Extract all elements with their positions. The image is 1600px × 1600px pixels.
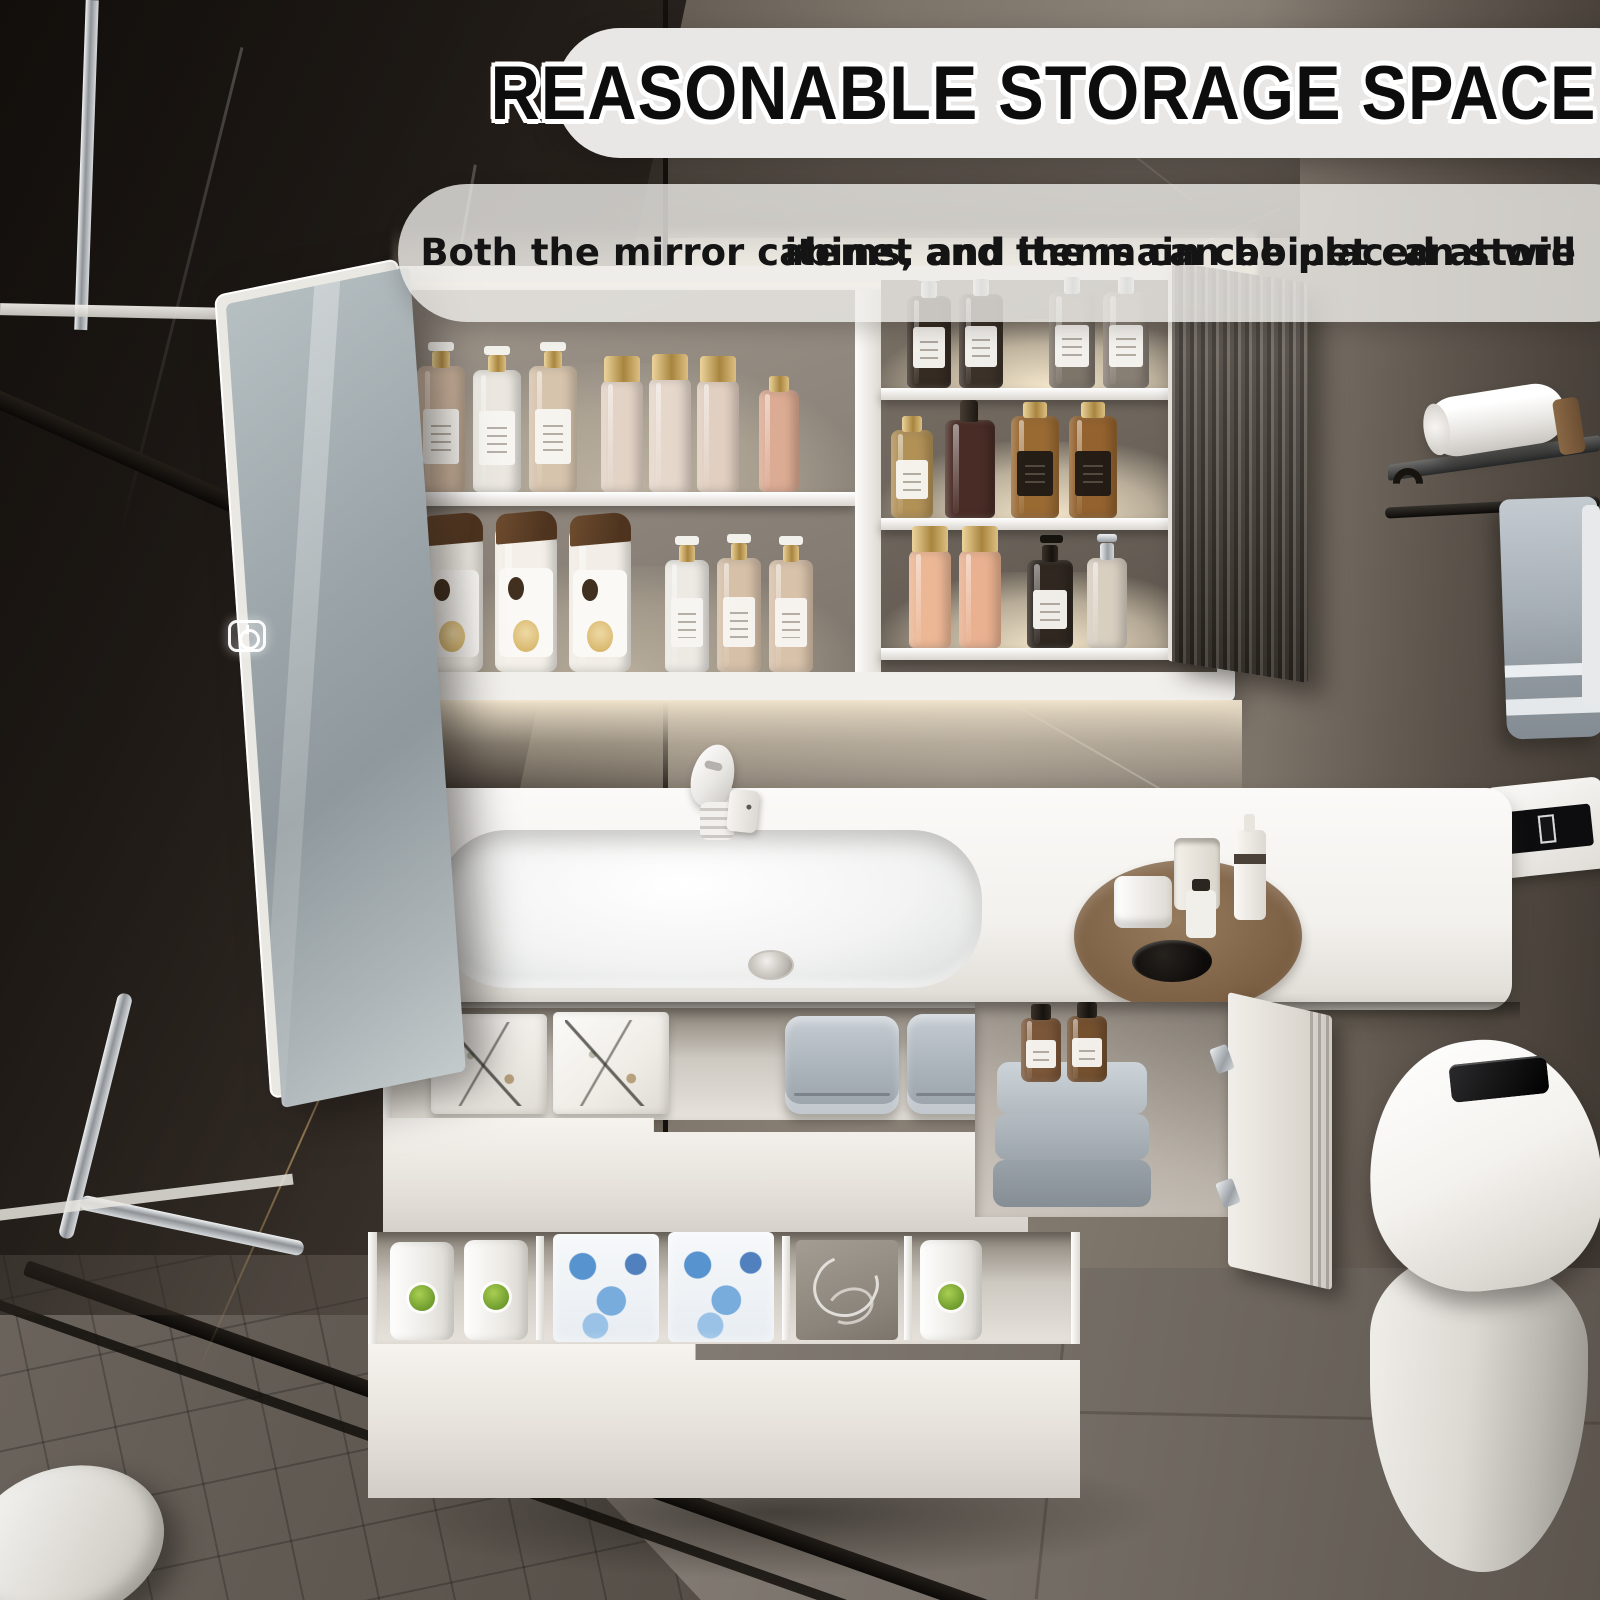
bottle-part: [775, 598, 808, 647]
open-shelf-row-2: [881, 400, 1217, 518]
bottle-part: [759, 390, 799, 492]
white-bottle-green-label: [390, 1242, 454, 1340]
shelf-board: [403, 492, 855, 506]
vanity-top-drawer: [383, 1008, 1028, 1244]
bottle-part: [731, 543, 747, 560]
bottle-part: [671, 598, 704, 647]
bottle-part: [909, 550, 951, 648]
bottle-part: [769, 376, 788, 392]
bottle-part: [945, 420, 995, 518]
hanging-towel-white: [1582, 505, 1600, 705]
bottle-part: [679, 545, 695, 562]
white-bottle-green-label: [920, 1240, 982, 1340]
drawer-front-panel: [383, 1118, 1028, 1244]
bottle-part: [535, 409, 571, 464]
bottle-part: [423, 409, 459, 464]
bottle-part: [573, 570, 626, 658]
subtitle-line-2: items, and items can be placed at will: [785, 230, 1576, 276]
power-icon: [228, 620, 266, 652]
soap-pump-bottle: [769, 560, 813, 672]
bottle-part: [422, 511, 483, 546]
drawer-divider: [536, 1236, 544, 1340]
side-cabinet-door: [1228, 992, 1332, 1290]
bottle-part: [1081, 402, 1104, 418]
peach-bottle: [909, 550, 951, 648]
drawer-interior: [383, 1008, 1028, 1120]
bottle-part: [1055, 325, 1089, 367]
bottle-part: [432, 351, 449, 368]
bottle-part: [1026, 1040, 1056, 1068]
bottle-part: [962, 526, 999, 552]
subtitle-banner: Both the mirror cabinet and the main cab…: [398, 184, 1600, 322]
shampoo-bottle: [569, 526, 631, 672]
lotion-pump-bottle: [473, 370, 521, 492]
bottle-part: [965, 326, 998, 367]
bottle-part: [1042, 545, 1059, 562]
bottle-part: [783, 545, 799, 562]
drawer-front-panel: [368, 1344, 1080, 1498]
bottle-part: [488, 355, 505, 372]
bottle-part: [604, 356, 641, 382]
folded-towel: [995, 1114, 1149, 1160]
bottle-part: [601, 380, 643, 492]
open-shelf-row-3: [881, 530, 1217, 648]
small-bottle: [1186, 890, 1216, 938]
tissue-pack: [553, 1234, 659, 1342]
cream-pump-bottle: [1087, 558, 1127, 648]
drawer-interior: [368, 1232, 1080, 1344]
amber-bottle: [1011, 416, 1059, 518]
bottle-part: [1023, 402, 1046, 418]
bottle-part: [902, 416, 922, 432]
cosmetics-tray: [1074, 860, 1302, 1012]
bottle-part: [1040, 535, 1063, 543]
bottle-part: [652, 354, 689, 380]
black-dish: [1132, 940, 1212, 982]
soap-pump-bottle: [665, 560, 709, 672]
bottle-part: [1031, 1004, 1050, 1020]
vanity-countertop: [362, 788, 1512, 1010]
bottle-part: [675, 536, 700, 545]
side-cabinet-opening: [975, 1002, 1233, 1217]
bottle-part: [540, 342, 567, 351]
bottle-part: [723, 597, 756, 647]
fluted-glass-door: [1168, 261, 1308, 683]
bottle-part: [697, 380, 739, 492]
control-button: [1538, 814, 1557, 844]
control-buttons: [1500, 803, 1594, 854]
drawer-divider: [904, 1236, 912, 1340]
bottle-part: [496, 509, 557, 544]
lotion-pump-bottle: [529, 366, 577, 492]
bottle-part: [649, 378, 691, 492]
mirror-cabinet: [385, 266, 1235, 702]
integrated-sink-basin: [437, 830, 982, 988]
drawer-side-wall: [368, 1232, 377, 1344]
folded-towel: [785, 1016, 899, 1114]
bottle-part: [1109, 325, 1143, 367]
bottle-part: [428, 342, 455, 351]
amber-bottle: [1069, 416, 1117, 518]
pink-bottle: [759, 390, 799, 492]
shampoo-bottle: [495, 524, 557, 672]
cable-organizer-box: [796, 1240, 898, 1340]
page-title: REASONABLE STORAGE SPACE: [490, 50, 1596, 137]
smart-toilet: [1362, 1030, 1600, 1590]
drawer-divider: [782, 1236, 790, 1340]
faucet-handle: [726, 789, 760, 834]
bottle-part: [727, 534, 752, 543]
dropper-bottle: [1234, 830, 1266, 920]
bottle-part: [1100, 543, 1114, 560]
title-banner: REASONABLE STORAGE SPACE: [556, 28, 1600, 158]
bottle-part: [912, 526, 949, 552]
lotion-pump-bottle: [417, 366, 465, 492]
toner-bottle: [649, 378, 691, 492]
bottle-part: [896, 460, 927, 499]
cabinet-divider: [855, 290, 881, 672]
tissue-pack: [668, 1232, 774, 1342]
peach-bottle: [959, 550, 1001, 648]
bottle-part: [1033, 590, 1067, 629]
soap-pump-bottle: [717, 558, 761, 672]
shelf-board: [881, 388, 1217, 400]
bottle-part: [484, 346, 511, 355]
mirror-cabinet-shelf-bottom: [403, 506, 855, 672]
bottle-part: [700, 356, 737, 382]
bottle-part: [499, 568, 552, 657]
bottle-part: [1017, 451, 1053, 496]
black-pump-bottle: [1027, 560, 1073, 648]
faucet-aerator: [704, 760, 723, 772]
bottle-part: [960, 400, 978, 422]
bottle-part: [479, 411, 515, 465]
shelf-board: [881, 648, 1217, 660]
sink-drain: [748, 950, 794, 980]
folded-towel: [993, 1160, 1151, 1207]
cream-jar: [1114, 876, 1172, 928]
maroon-spray-bottle: [945, 420, 995, 518]
bottle-part: [959, 550, 1001, 648]
faucet-dot: [746, 804, 751, 809]
toner-bottle: [697, 380, 739, 492]
toilet-body: [1370, 1252, 1588, 1572]
amber-bottle: [1021, 1018, 1061, 1082]
bottle-part: [1075, 451, 1111, 496]
bottle-part: [1087, 558, 1127, 648]
bottle-part: [1097, 534, 1116, 542]
bottle-part: [779, 536, 804, 545]
vanity-bottom-drawer: [368, 1232, 1080, 1498]
toner-bottle: [601, 380, 643, 492]
bathroom-product-photo: REASONABLE STORAGE SPACE Both the mirror…: [0, 0, 1600, 1600]
bottle-part: [544, 351, 561, 368]
bottle-part: [913, 327, 946, 367]
printed-storage-box: [553, 1012, 669, 1114]
white-bottle-green-label: [464, 1240, 528, 1340]
bottle-part: [1077, 1002, 1096, 1018]
drawer-side-wall: [1071, 1232, 1080, 1344]
amber-bottle: [1067, 1016, 1107, 1082]
bottle-part: [1072, 1038, 1102, 1067]
gold-perfume-bottle: [891, 430, 933, 518]
bottle-part: [570, 511, 631, 546]
